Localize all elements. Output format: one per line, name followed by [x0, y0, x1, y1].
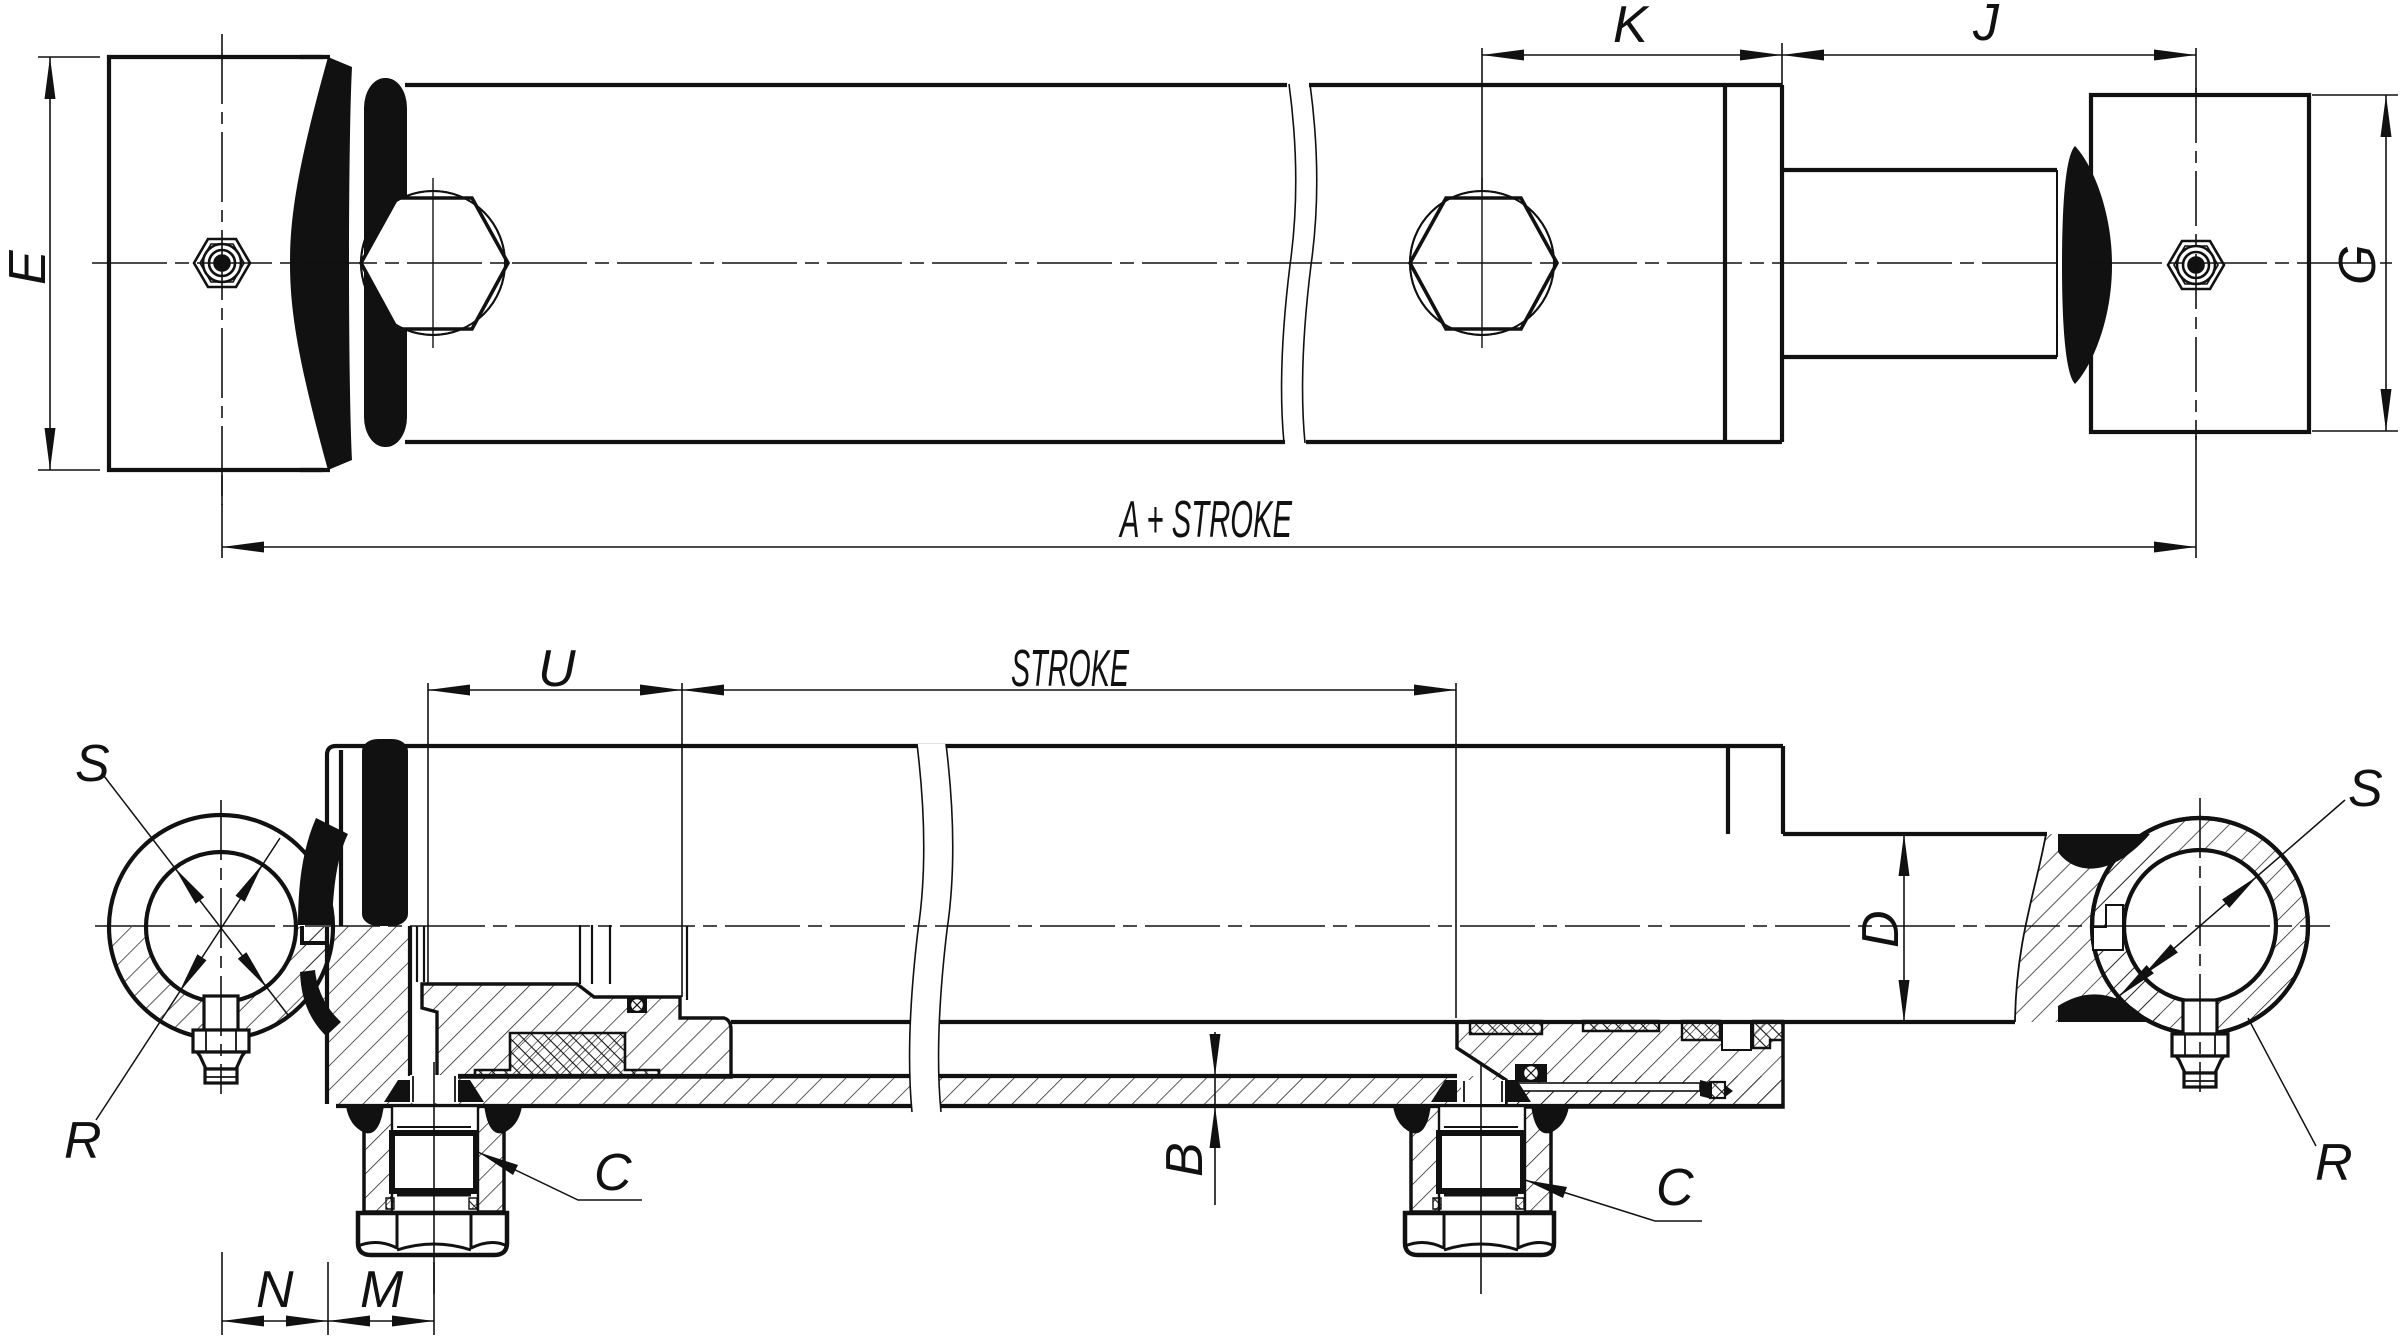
- svg-text:D: D: [1852, 910, 1910, 948]
- svg-text:C: C: [594, 1144, 632, 1202]
- svg-text:K: K: [1613, 0, 1650, 54]
- svg-text:E: E: [0, 249, 57, 285]
- svg-text:A + STROKE: A + STROKE: [1118, 491, 1292, 549]
- svg-text:STROKE: STROKE: [1011, 640, 1130, 698]
- svg-text:J: J: [1972, 0, 2000, 52]
- svg-text:R: R: [2315, 1134, 2353, 1192]
- svg-text:N: N: [256, 1261, 294, 1319]
- svg-text:S: S: [2348, 760, 2383, 818]
- svg-text:R: R: [64, 1112, 102, 1170]
- svg-text:S: S: [75, 735, 110, 793]
- svg-text:B: B: [1156, 1142, 1214, 1177]
- svg-text:U: U: [538, 640, 576, 698]
- svg-text:M: M: [360, 1261, 404, 1319]
- svg-text:C: C: [1656, 1159, 1694, 1217]
- svg-text:G: G: [2329, 245, 2387, 285]
